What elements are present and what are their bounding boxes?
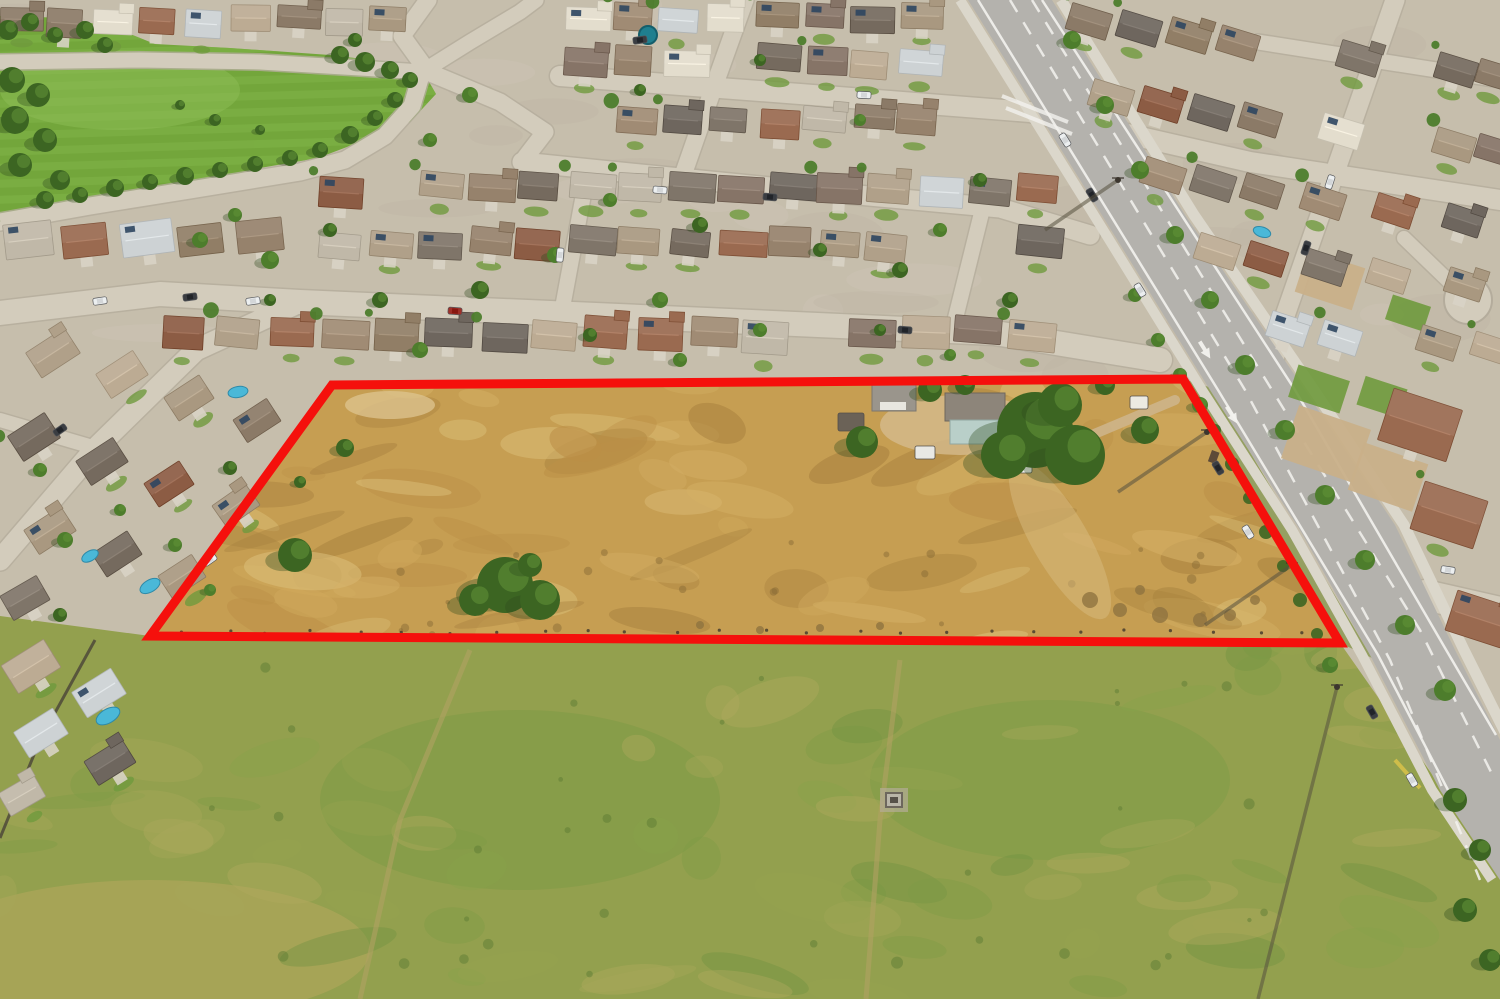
aerial-photo-canvas — [0, 0, 1500, 999]
pasture-region — [0, 616, 1500, 999]
aerial-photo — [0, 0, 1500, 999]
